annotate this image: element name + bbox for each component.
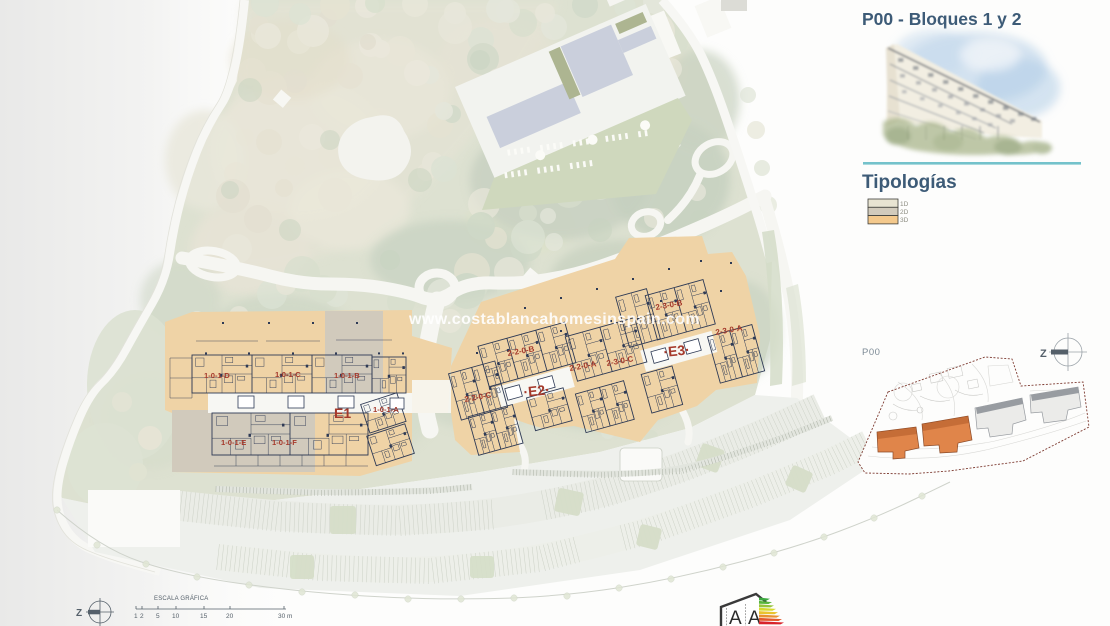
svg-text:2D: 2D: [900, 209, 909, 216]
svg-text:15: 15: [200, 613, 208, 620]
svg-text:www.costablancahomesinspain.co: www.costablancahomesinspain.com: [408, 311, 700, 328]
svg-text:ESCALA GRÁFICA: ESCALA GRÁFICA: [154, 595, 208, 602]
svg-text:1-0-1-E: 1-0-1-E: [221, 438, 246, 447]
svg-text:1D: 1D: [900, 201, 909, 208]
svg-text:20: 20: [226, 613, 234, 620]
svg-text:30 m: 30 m: [278, 613, 292, 620]
svg-text:Z: Z: [1040, 348, 1047, 360]
svg-text:Z: Z: [76, 608, 82, 619]
svg-text:1: 1: [134, 613, 138, 620]
svg-text:1-0-1-A: 1-0-1-A: [373, 405, 399, 414]
svg-text:1-0-1-F: 1-0-1-F: [272, 438, 297, 447]
svg-text:5: 5: [156, 613, 160, 620]
svg-text:1-0-1-D: 1-0-1-D: [204, 371, 230, 380]
svg-text:1-0-1-B: 1-0-1-B: [334, 371, 360, 380]
svg-text:·E2·: ·E2·: [523, 381, 551, 400]
svg-text:P00 - Bloques 1 y 2: P00 - Bloques 1 y 2: [862, 9, 1022, 29]
svg-text:10: 10: [172, 613, 180, 620]
svg-text:·E3·: ·E3·: [663, 341, 691, 360]
svg-text:E1: E1: [334, 405, 351, 421]
svg-text:P00: P00: [862, 347, 880, 358]
svg-text:Tipologías: Tipologías: [862, 172, 957, 193]
svg-text:2: 2: [140, 613, 144, 620]
svg-text:1-0-1-C: 1-0-1-C: [275, 370, 301, 379]
svg-text:3D: 3D: [900, 217, 909, 224]
svg-text:A: A: [729, 608, 742, 626]
